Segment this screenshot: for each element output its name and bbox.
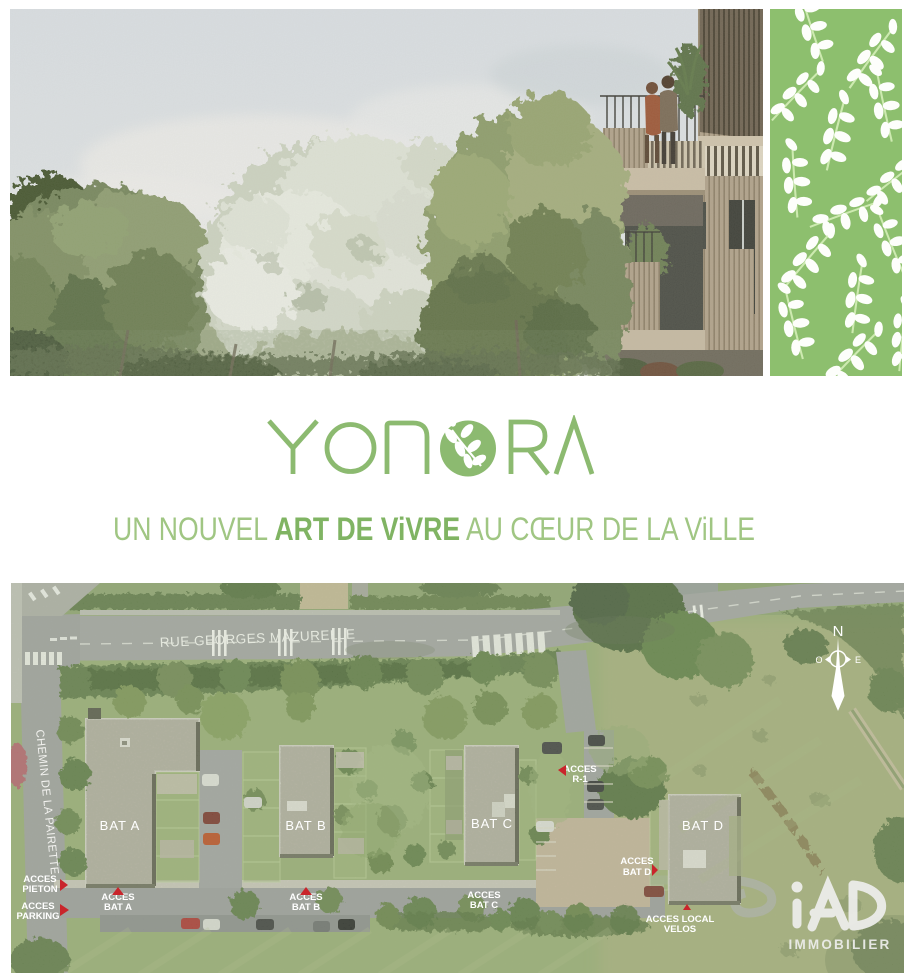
svg-text:IMMOBILIER: IMMOBILIER [789,937,892,952]
svg-text:E: E [855,655,861,665]
svg-text:BAT D: BAT D [682,818,724,833]
svg-text:BAT C: BAT C [470,900,498,911]
svg-text:BAT B: BAT B [292,902,320,913]
svg-text:N: N [833,623,844,640]
svg-text:R-1: R-1 [572,774,588,785]
svg-text:UN NOUVEL ART DE ViVRE AU CŒUR: UN NOUVEL ART DE ViVRE AU CŒUR DE LA ViL… [113,511,755,547]
svg-text:ACCES: ACCES [620,856,653,867]
svg-text:BAT D: BAT D [623,867,651,878]
svg-text:VELOS: VELOS [664,924,696,935]
svg-text:PARKING: PARKING [16,911,59,922]
svg-text:BAT A: BAT A [100,818,141,833]
svg-text:BAT A: BAT A [104,902,132,913]
svg-text:PIETON: PIETON [22,884,57,895]
svg-text:O: O [815,655,822,665]
svg-text:BAT C: BAT C [471,816,513,831]
svg-text:BAT B: BAT B [285,818,326,833]
